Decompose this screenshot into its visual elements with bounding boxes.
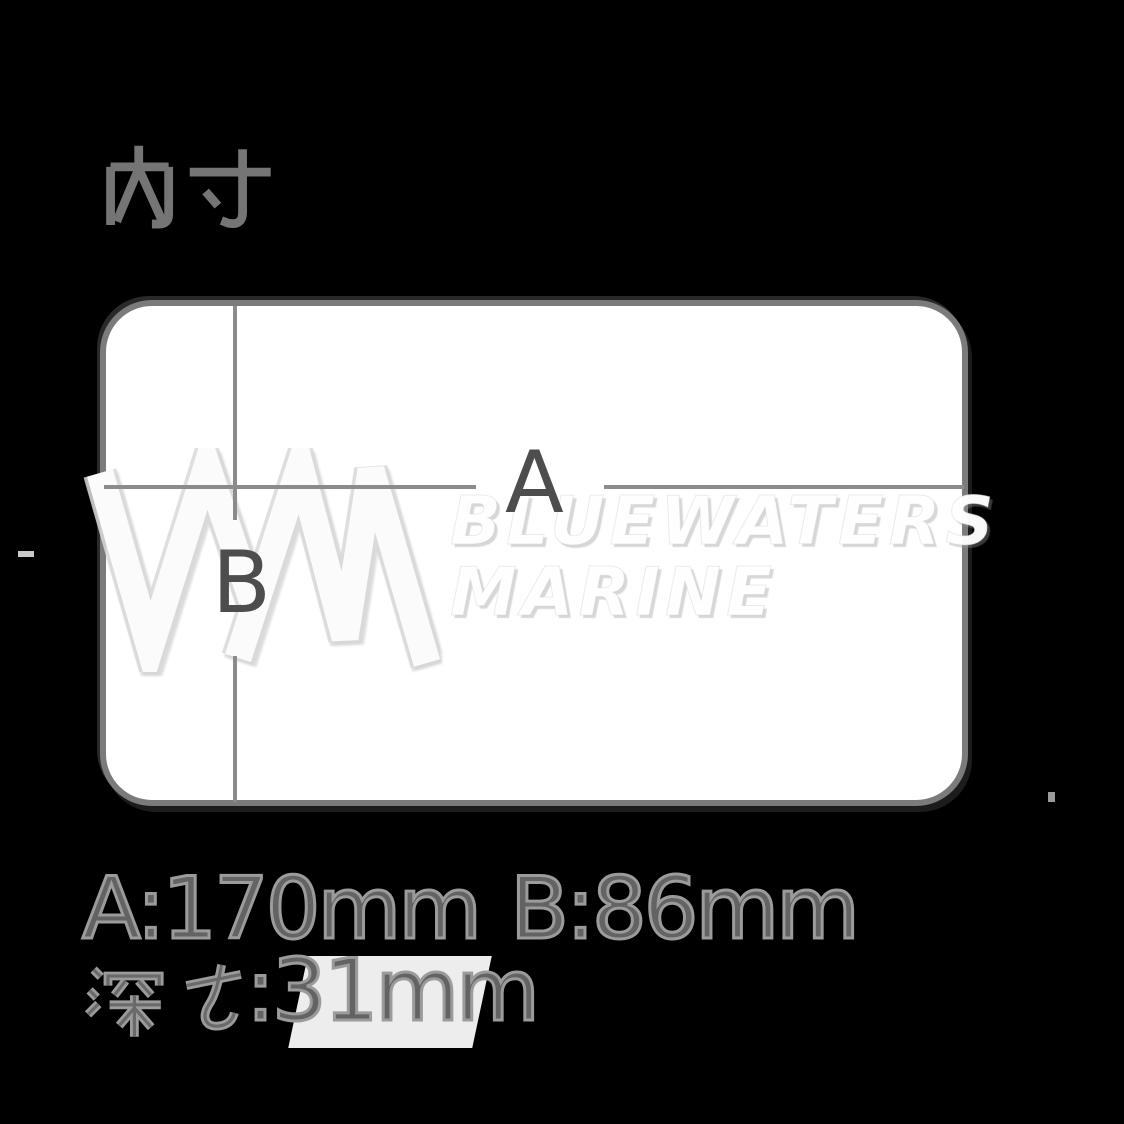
dimension-depth-value: :31mm [246, 948, 537, 1034]
dimension-line-b-lower [233, 656, 237, 802]
dimension-line-a-right [604, 485, 964, 489]
label-a: A [505, 440, 564, 526]
title-inner-dimensions [100, 142, 276, 234]
watermark-line2: MARINE [450, 560, 999, 626]
label-b: B [212, 540, 271, 626]
dimension-b-value: B:86mm [510, 866, 857, 952]
diagram-canvas: BLUEWATERS MARINE A B A:170mm B:86mm [0, 0, 1124, 1124]
depth-label-kanji [84, 958, 252, 1042]
dimension-line-a-left [104, 485, 476, 489]
dimension-a-value: A:170mm [82, 866, 479, 952]
artifact-dash [18, 551, 34, 557]
artifact-dot [1048, 792, 1055, 802]
